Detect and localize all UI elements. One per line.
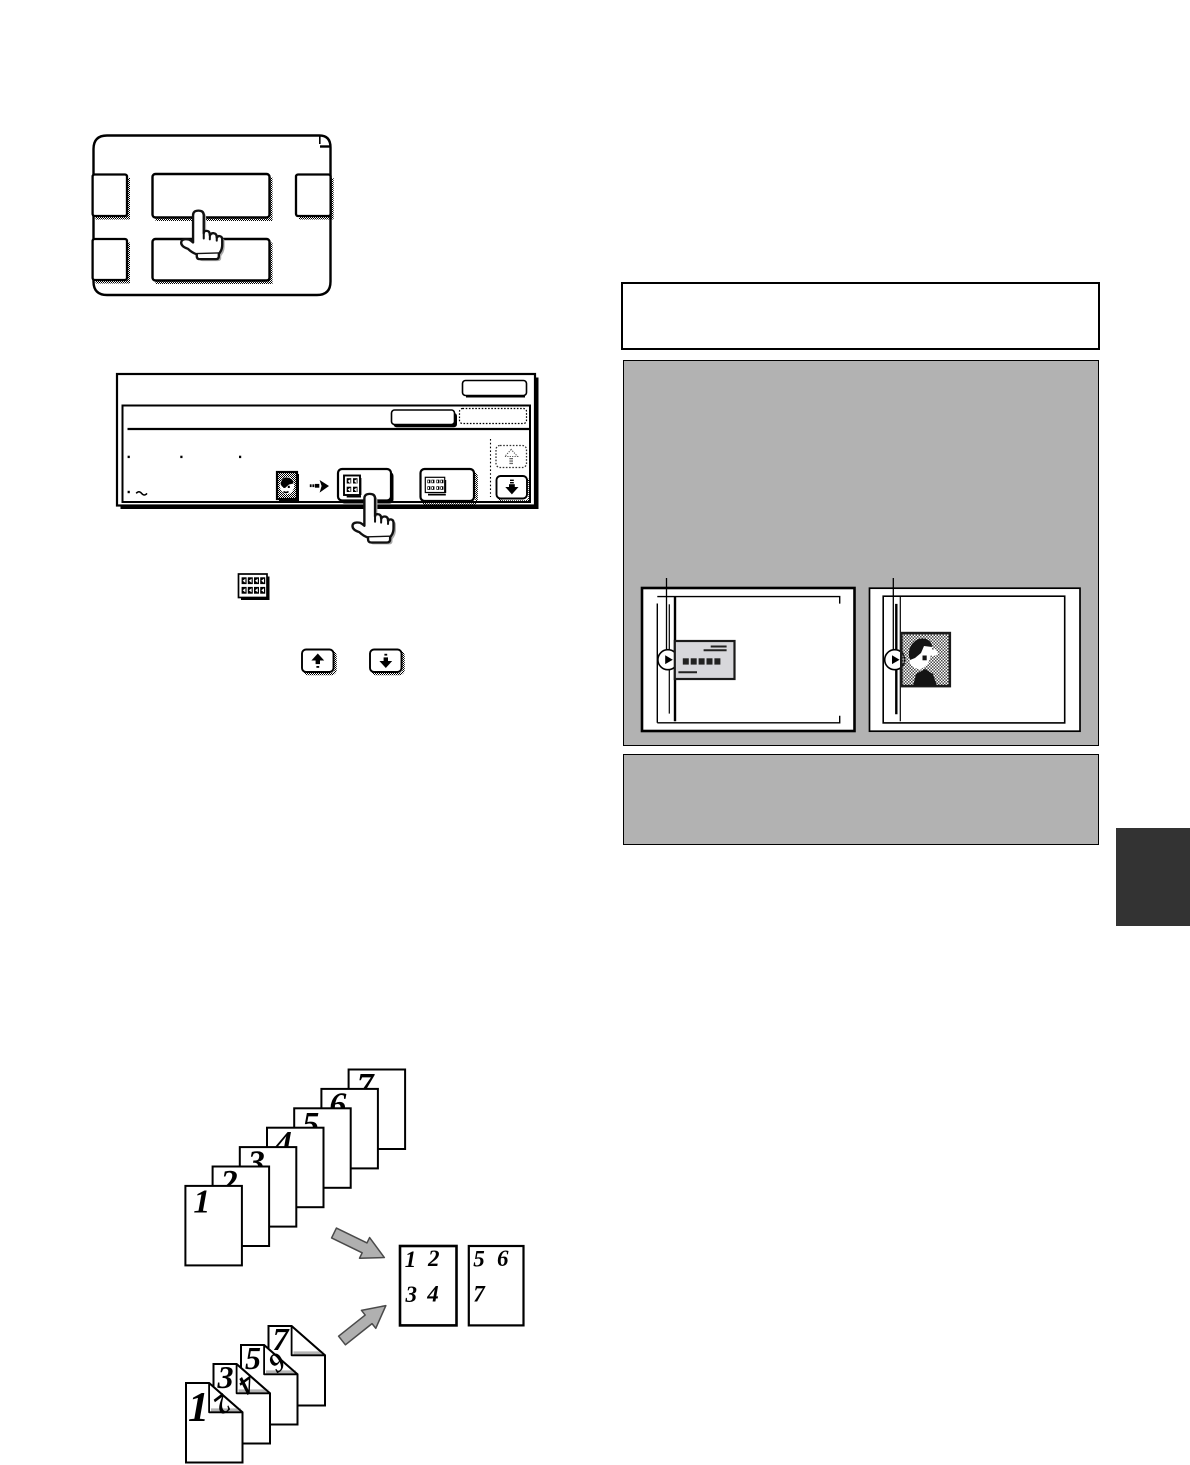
svg-text:3: 3 [405, 1282, 418, 1307]
svg-text:5: 5 [245, 1340, 261, 1376]
svg-text:5: 5 [473, 1246, 485, 1271]
svg-text:1: 1 [405, 1247, 417, 1272]
svg-text:2: 2 [427, 1246, 440, 1271]
svg-text:6: 6 [497, 1246, 509, 1271]
svg-text:4: 4 [426, 1281, 439, 1306]
svg-text:7: 7 [473, 1282, 486, 1307]
svg-text:1: 1 [193, 1183, 210, 1220]
svg-text:1: 1 [188, 1385, 209, 1431]
